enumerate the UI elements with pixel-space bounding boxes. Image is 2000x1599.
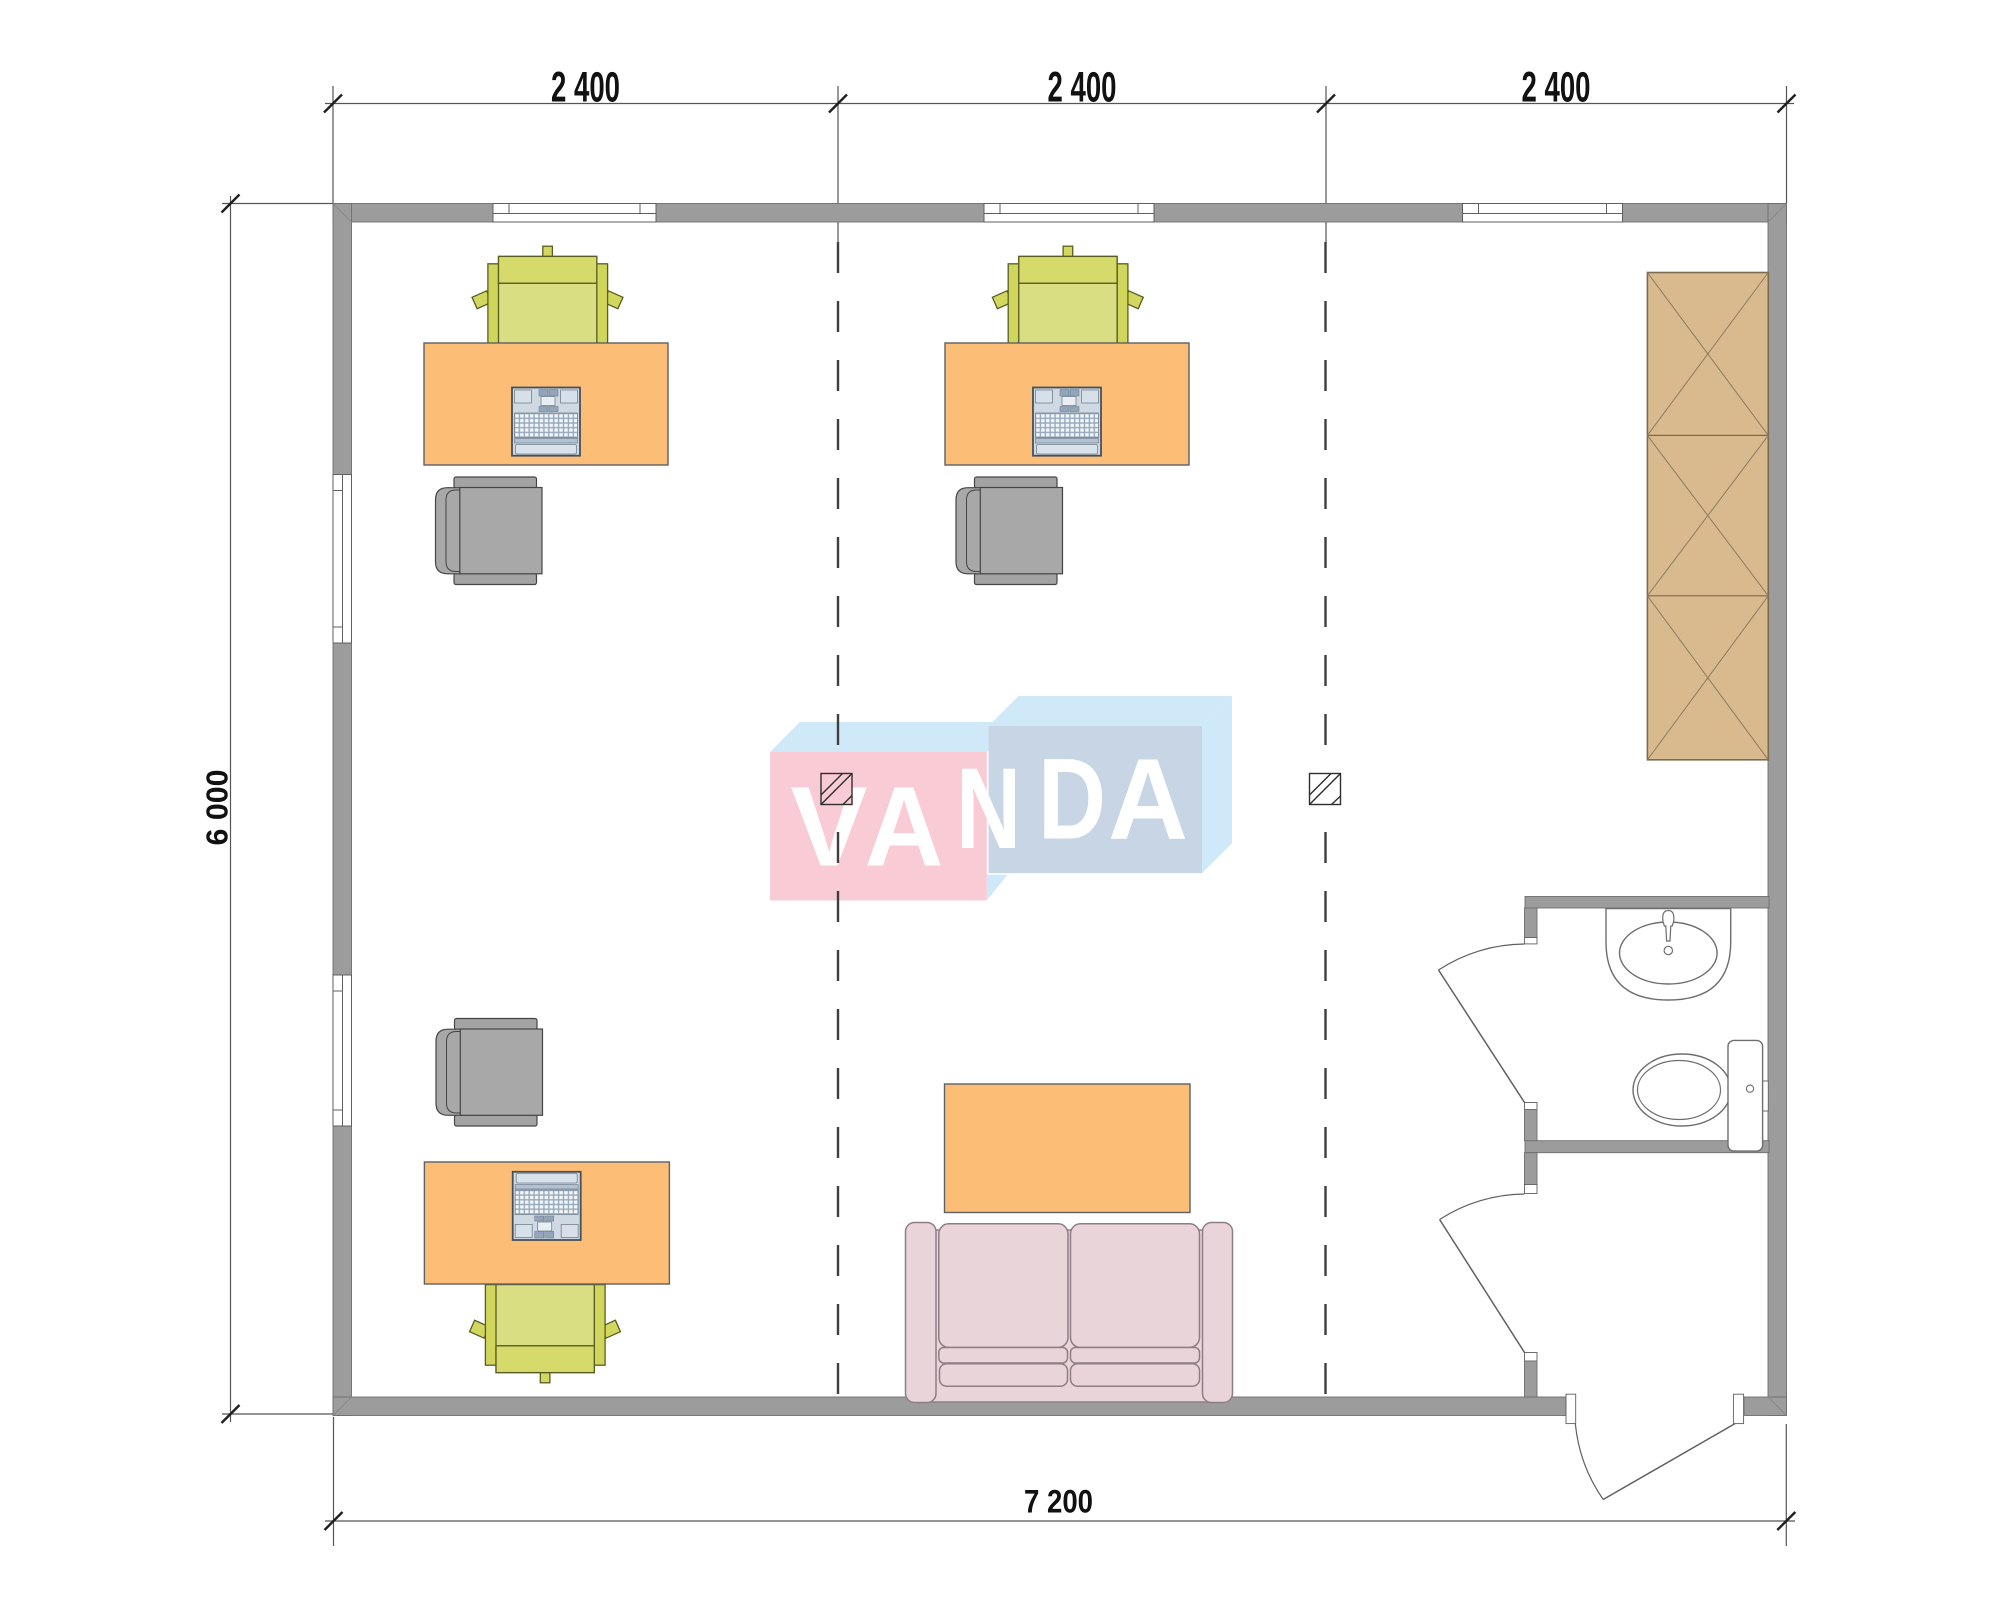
svg-text:7 200: 7 200	[1024, 1484, 1093, 1520]
svg-text:2 400: 2 400	[551, 64, 620, 112]
svg-text:N: N	[956, 745, 1021, 873]
svg-text:D: D	[1038, 735, 1106, 863]
svg-text:2 400: 2 400	[1048, 64, 1117, 112]
svg-text:6 000: 6 000	[200, 770, 235, 846]
svg-text:A: A	[1108, 736, 1188, 864]
svg-text:2 400: 2 400	[1522, 64, 1591, 112]
svg-text:A: A	[865, 763, 944, 889]
